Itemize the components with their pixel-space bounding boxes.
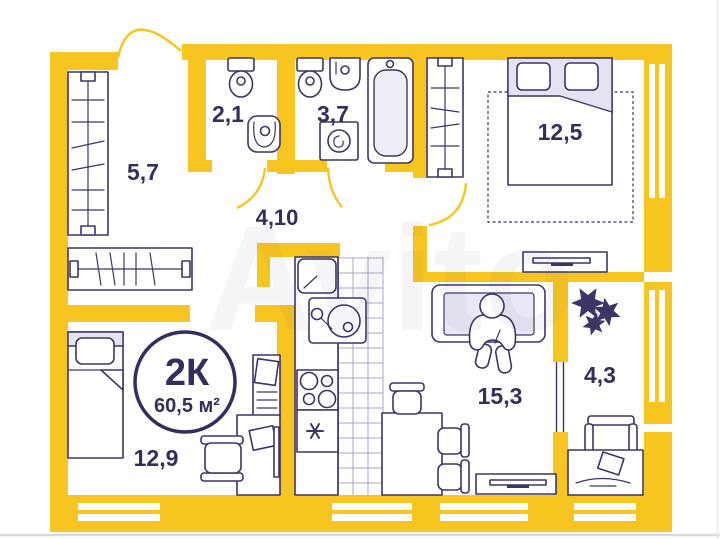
sink-icon bbox=[330, 58, 360, 90]
floor-plan-image: Avito 5,7 2,1 3,7 4,10 12,5 12,9 15,3 4,… bbox=[0, 0, 720, 539]
tv-stand-icon bbox=[476, 474, 556, 494]
label-living-area: 15,3 bbox=[478, 383, 523, 409]
wardrobe-hall-icon bbox=[68, 248, 192, 290]
toilet-icon bbox=[297, 58, 323, 97]
desk-chair-icon bbox=[201, 436, 243, 481]
wardrobe-tall-icon bbox=[68, 72, 108, 235]
floor-plan-svg: Avito 5,7 2,1 3,7 4,10 12,5 12,9 15,3 4,… bbox=[0, 0, 720, 539]
chair-icon bbox=[390, 383, 424, 391]
area-badge: 2К 60,5 м² bbox=[135, 332, 235, 432]
living-window bbox=[440, 503, 528, 510]
washing-machine-icon bbox=[320, 122, 358, 160]
chair-icon bbox=[438, 428, 462, 454]
desk-icon bbox=[237, 415, 280, 495]
balcony-desk-icon bbox=[568, 450, 643, 495]
label-bath-area: 3,7 bbox=[317, 101, 349, 127]
bedroom-window bbox=[649, 64, 655, 198]
balcony-door-window bbox=[553, 362, 568, 432]
toilet-icon bbox=[228, 58, 254, 97]
label-kids-area: 12,9 bbox=[134, 445, 179, 471]
badge-type-label: 2К bbox=[165, 352, 210, 394]
label-balcony-area: 4,3 bbox=[584, 362, 616, 388]
kitchen-window bbox=[332, 503, 412, 510]
shelf-icon bbox=[253, 355, 280, 417]
kids-room-window bbox=[78, 503, 160, 510]
label-wc-area: 2,1 bbox=[212, 101, 244, 127]
stove-icon bbox=[297, 370, 338, 410]
bathtub-icon bbox=[368, 58, 413, 163]
label-bedroom-area: 12,5 bbox=[538, 119, 583, 145]
label-wardrobe-area: 5,7 bbox=[127, 159, 159, 185]
label-hall-area: 4,10 bbox=[256, 205, 299, 230]
corner-sink-icon bbox=[248, 116, 280, 152]
balcony-side-window bbox=[649, 290, 655, 402]
wardrobe-icon bbox=[427, 58, 463, 177]
chair-icon bbox=[438, 464, 462, 490]
single-bed-icon bbox=[68, 332, 123, 458]
badge-total-area: 60,5 м² bbox=[154, 395, 220, 417]
balcony-bottom-window bbox=[574, 503, 636, 510]
dishwasher-icon bbox=[297, 410, 338, 452]
